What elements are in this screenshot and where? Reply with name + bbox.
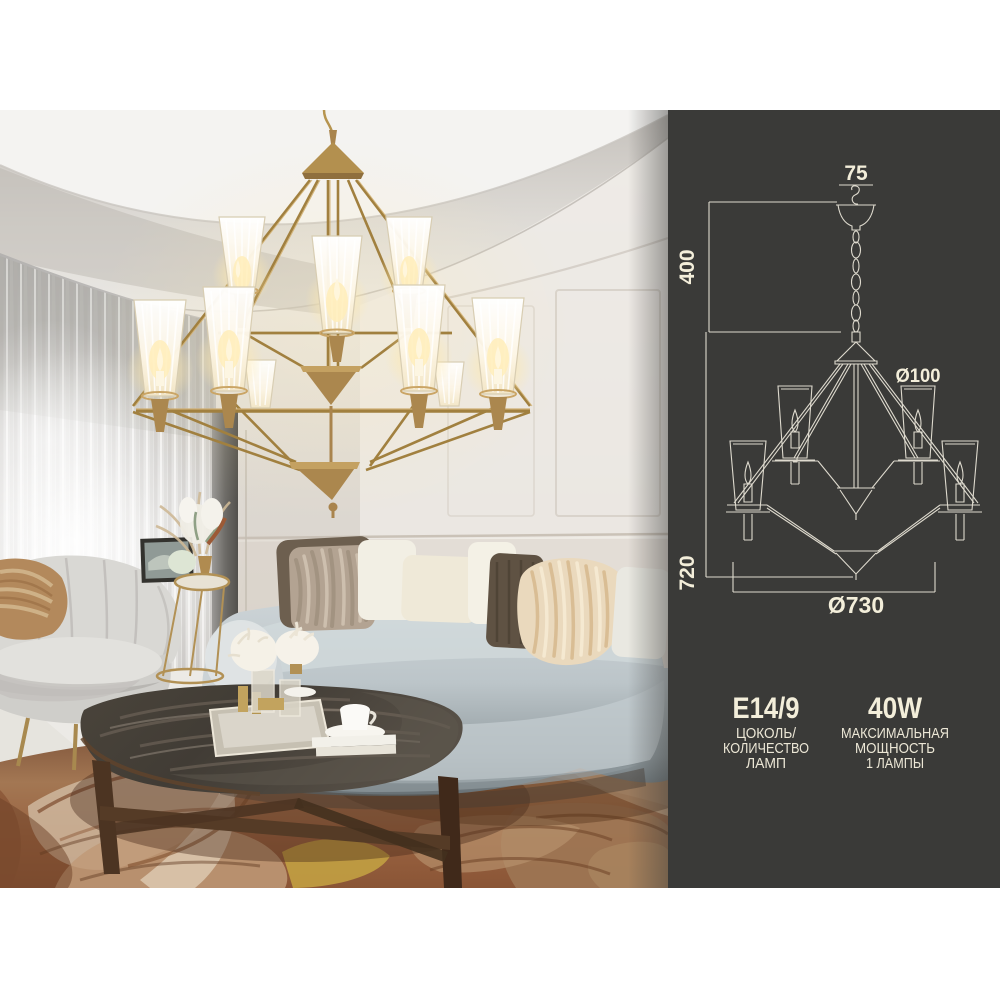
svg-text:1 ЛАМПЫ: 1 ЛАМПЫ: [866, 756, 924, 772]
svg-text:Ø730: Ø730: [828, 592, 884, 618]
svg-text:ЦОКОЛЬ/: ЦОКОЛЬ/: [736, 726, 797, 742]
svg-text:МАКСИМАЛЬНАЯ: МАКСИМАЛЬНАЯ: [841, 726, 949, 742]
svg-text:40W: 40W: [868, 692, 923, 725]
svg-text:Ø100: Ø100: [896, 366, 941, 387]
svg-text:КОЛИЧЕСТВО: КОЛИЧЕСТВО: [723, 741, 809, 757]
svg-text:720: 720: [676, 555, 699, 590]
svg-text:E14/9: E14/9: [733, 692, 800, 725]
svg-text:75: 75: [844, 162, 868, 185]
svg-text:МОЩНОСТЬ: МОЩНОСТЬ: [855, 741, 935, 757]
svg-text:ЛАМП: ЛАМП: [746, 756, 786, 772]
svg-text:400: 400: [676, 249, 699, 284]
